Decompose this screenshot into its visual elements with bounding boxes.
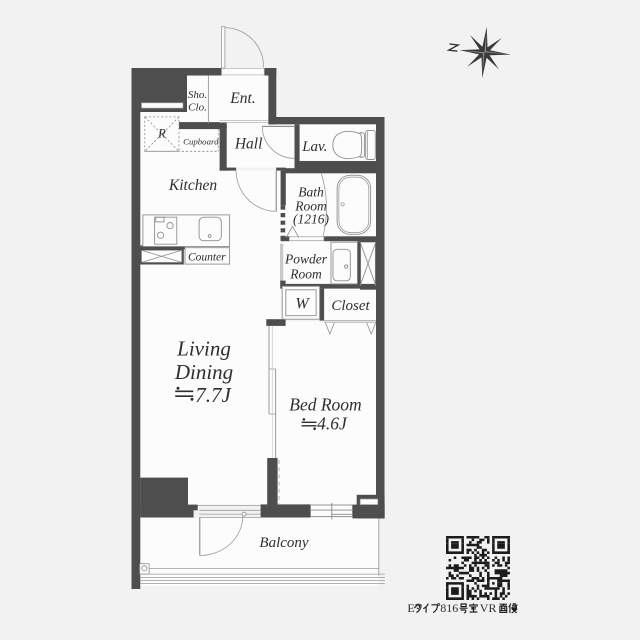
svg-text:Dining: Dining: [174, 360, 233, 384]
svg-text:Clo.: Clo.: [188, 102, 207, 114]
svg-text:Powder: Powder: [284, 252, 328, 267]
svg-text:7.7J: 7.7J: [195, 383, 232, 407]
svg-text:Hall: Hall: [234, 136, 263, 153]
svg-text:E: E: [407, 601, 414, 615]
svg-text:Ent.: Ent.: [229, 90, 255, 107]
svg-text:Balcony: Balcony: [259, 535, 308, 551]
svg-text:Bed Room: Bed Room: [289, 395, 361, 415]
svg-text:816: 816: [440, 601, 458, 615]
svg-text:W: W: [295, 296, 310, 313]
svg-text:Kitchen: Kitchen: [168, 177, 217, 194]
svg-text:Living: Living: [176, 337, 231, 361]
svg-text:Cupboard: Cupboard: [183, 136, 219, 146]
svg-text:Counter: Counter: [188, 252, 226, 264]
svg-text:(1216): (1216): [293, 212, 329, 227]
svg-text:Lav.: Lav.: [301, 139, 327, 155]
svg-text:Sho.: Sho.: [188, 89, 207, 101]
svg-text:Closet: Closet: [331, 298, 370, 314]
svg-text:VR: VR: [480, 601, 497, 615]
svg-text:4.6J: 4.6J: [317, 414, 348, 434]
svg-text:R: R: [157, 126, 166, 140]
svg-text:Room: Room: [289, 267, 322, 282]
svg-text:Bath: Bath: [298, 185, 324, 200]
